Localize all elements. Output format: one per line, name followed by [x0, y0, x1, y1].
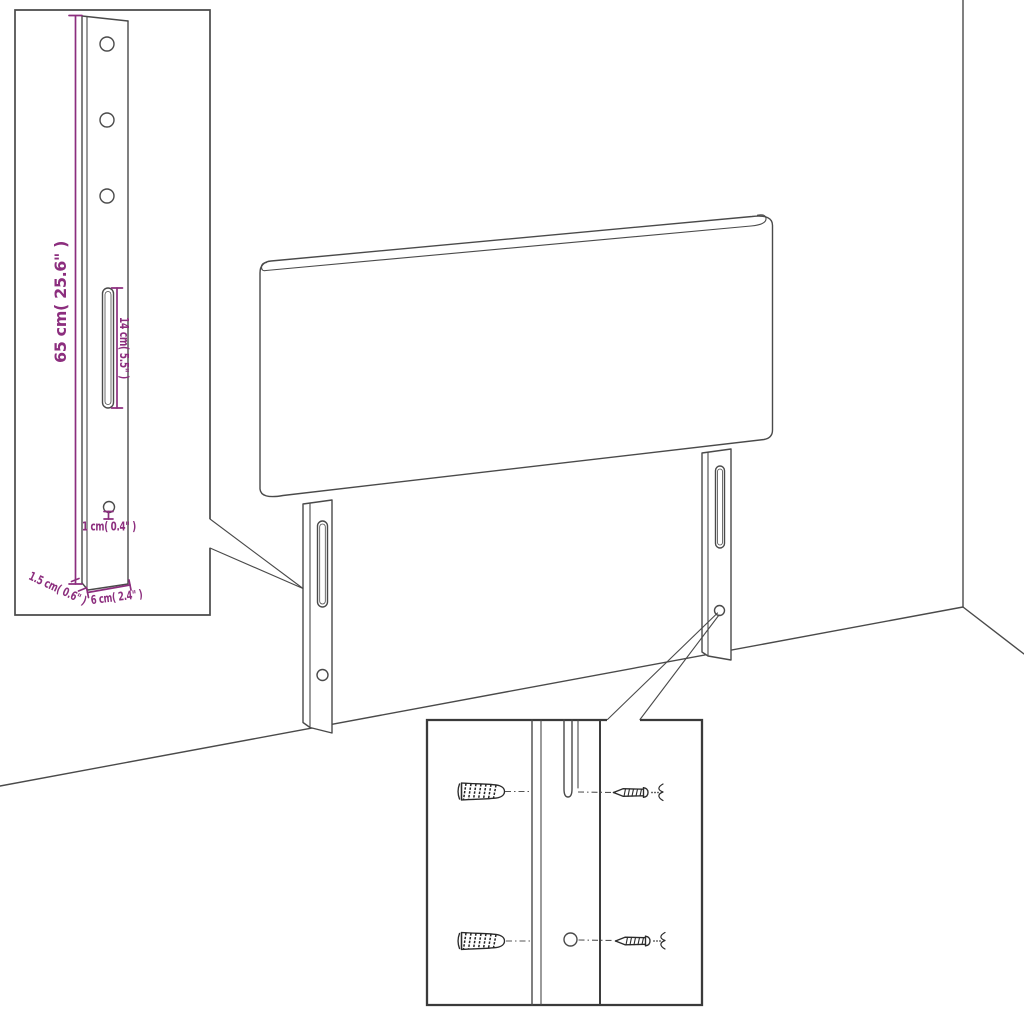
leg-hole-icon [100, 113, 114, 127]
right-leg-icon [702, 449, 731, 660]
leg-slot-icon [318, 521, 328, 607]
dimension-height: 65 cm( 25.6" ) [51, 16, 82, 585]
dim-hole-label: 1 cm( 0.4" ) [82, 520, 136, 534]
leader-lines [210, 519, 719, 720]
hardware-row-hole [458, 933, 665, 950]
dim-height-label: 65 cm( 25.6" ) [51, 241, 70, 363]
dimension-thickness: 1.5 cm( 0.6" ) [27, 569, 89, 608]
diagram-canvas: 65 cm( 25.6" ) 14 cm( 5.5" ) 1 cm( 0.4" … [0, 0, 1024, 1024]
dim-thickness-label: 1.5 cm( 0.6" ) [27, 569, 89, 608]
dimension-width: 6 cm( 2.4" ) [87, 580, 144, 607]
hardware-row-slot [458, 783, 663, 801]
leg-slot-icon [716, 466, 725, 548]
left-leg-icon [303, 500, 332, 733]
hardware-detail-inset [427, 720, 702, 1005]
leg-detail-inset: 65 cm( 25.6" ) 14 cm( 5.5" ) 1 cm( 0.4" … [15, 10, 210, 615]
dim-slot-label: 14 cm( 5.5" ) [117, 317, 131, 379]
diagram-svg: 65 cm( 25.6" ) 14 cm( 5.5" ) 1 cm( 0.4" … [0, 0, 1024, 1024]
leg-hole-icon [100, 37, 114, 51]
enlarged-leg-section [532, 720, 600, 1005]
leg-slot-icon [103, 288, 114, 408]
headboard-icon [260, 215, 773, 497]
leg-detail-drawing [82, 16, 128, 590]
leg-hole-icon [100, 189, 114, 203]
leg-hole-icon [564, 933, 577, 946]
leg-hole-icon [317, 670, 328, 681]
leg-slot-icon [564, 720, 572, 797]
